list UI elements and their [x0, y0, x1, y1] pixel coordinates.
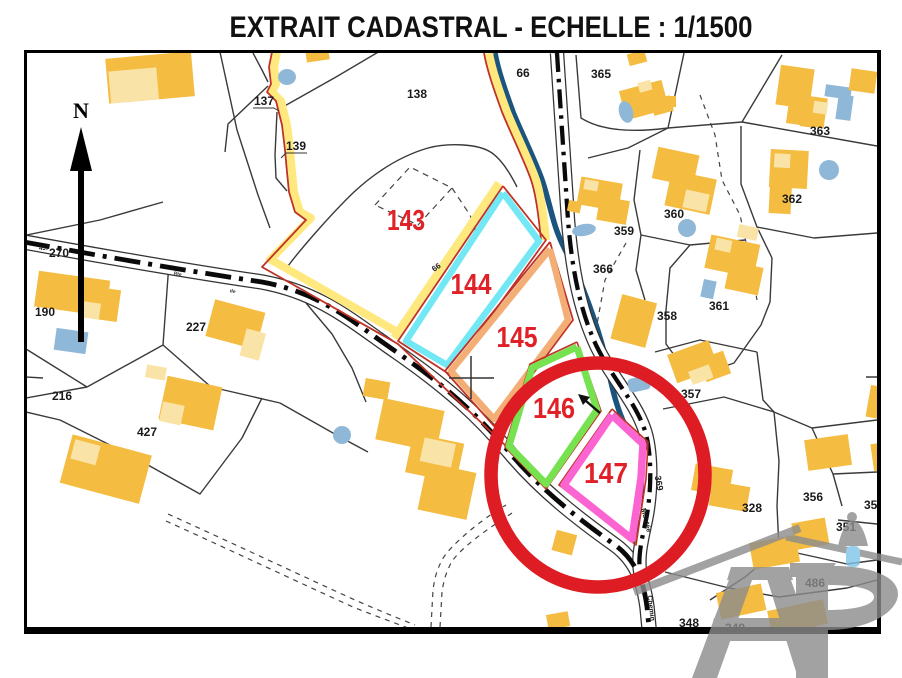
svg-text:Rte: Rte	[173, 271, 182, 278]
svg-text:363: 363	[810, 124, 830, 138]
svg-text:EXTRAIT CADASTRAL - ECHELLE :: EXTRAIT CADASTRAL - ECHELLE : 1/1500	[230, 11, 753, 44]
svg-text:137: 137	[254, 94, 274, 108]
svg-text:366: 366	[593, 262, 613, 276]
svg-text:227: 227	[186, 320, 206, 334]
svg-text:144: 144	[451, 269, 492, 301]
svg-text:N: N	[73, 98, 89, 123]
svg-text:412: 412	[880, 417, 900, 431]
svg-text:328: 328	[742, 501, 762, 515]
svg-text:190: 190	[35, 305, 55, 319]
svg-text:138: 138	[407, 87, 427, 101]
svg-text:365: 365	[591, 67, 611, 81]
svg-text:146: 146	[533, 393, 575, 425]
svg-text:143: 143	[387, 205, 425, 237]
svg-text:361: 361	[709, 299, 729, 313]
svg-text:427: 427	[137, 425, 157, 439]
svg-text:139: 139	[286, 139, 306, 153]
svg-text:362: 362	[782, 192, 802, 206]
svg-text:66: 66	[516, 66, 530, 80]
svg-text:358: 358	[657, 309, 677, 323]
svg-text:360: 360	[664, 207, 684, 221]
svg-text:de: de	[229, 288, 236, 295]
svg-text:270: 270	[49, 246, 69, 260]
svg-text:356: 356	[803, 490, 823, 504]
svg-text:147: 147	[584, 458, 628, 490]
svg-text:359: 359	[614, 224, 634, 238]
svg-text:145: 145	[497, 322, 538, 354]
svg-text:216: 216	[52, 389, 72, 403]
svg-text:355: 355	[864, 498, 884, 512]
svg-text:457: 457	[39, 246, 50, 252]
